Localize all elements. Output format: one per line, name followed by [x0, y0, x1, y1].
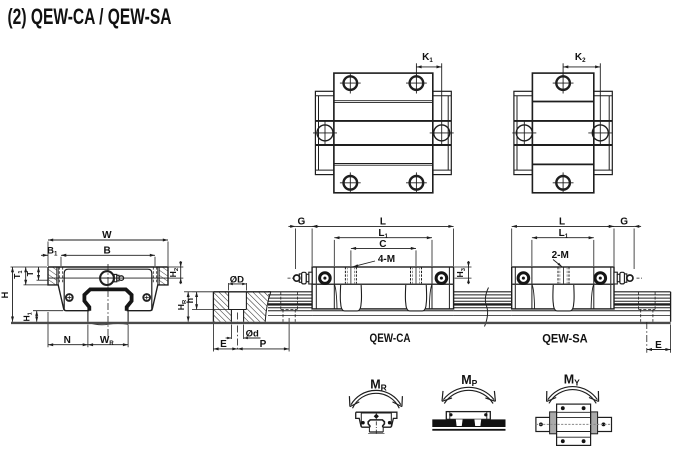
svg-text:E: E	[655, 340, 662, 351]
svg-text:C: C	[379, 239, 386, 250]
svg-text:L: L	[559, 217, 565, 228]
svg-text:E: E	[220, 339, 227, 350]
svg-text:P: P	[260, 339, 267, 350]
svg-text:T: T	[25, 270, 35, 276]
svg-text:QEW-SA: QEW-SA	[542, 331, 588, 345]
svg-text:QEW-CA: QEW-CA	[370, 331, 411, 345]
svg-text:ØD: ØD	[230, 274, 244, 285]
svg-text:G: G	[620, 217, 628, 228]
svg-text:L: L	[380, 217, 386, 228]
svg-text:W: W	[102, 230, 112, 241]
svg-text:N: N	[64, 335, 71, 346]
svg-text:B: B	[103, 246, 110, 257]
svg-text:(2) QEW-CA / QEW-SA: (2) QEW-CA / QEW-SA	[8, 4, 172, 29]
svg-text:4-M: 4-M	[378, 254, 395, 265]
svg-text:Ød: Ød	[246, 328, 259, 339]
svg-text:G: G	[298, 217, 306, 228]
svg-text:2-M: 2-M	[552, 250, 569, 261]
svg-text:H: H	[0, 291, 10, 298]
